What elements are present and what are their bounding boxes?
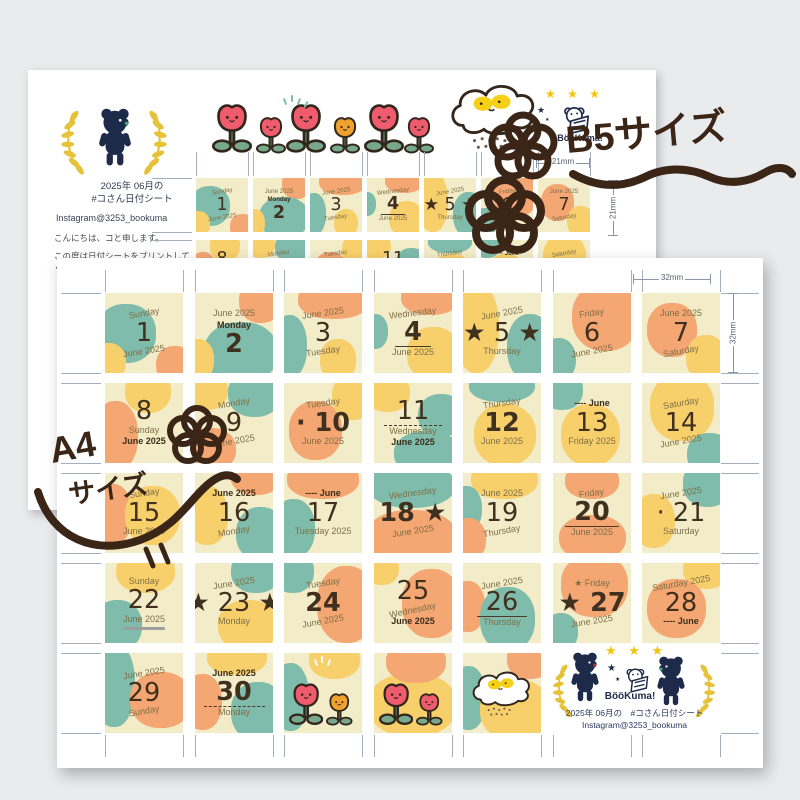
cloud-egg-icon	[469, 661, 535, 725]
calendar-cell-4: Wednesday4June 2025	[367, 178, 419, 232]
calendar-cell-13: ---- June13Friday 2025	[553, 383, 631, 463]
crop-mark	[553, 735, 554, 757]
crop-mark	[362, 152, 363, 176]
date-label: Thursday	[483, 617, 521, 628]
calendar-cell-22: Sunday22June 2025	[105, 563, 183, 643]
calendar-cell-14: Saturday14June 2025	[642, 383, 720, 463]
bear-icon	[94, 90, 136, 182]
crop-mark	[721, 733, 759, 734]
date-number: 28	[665, 590, 697, 617]
decor-cell-tulipsA	[284, 653, 362, 733]
crop-mark	[721, 463, 759, 464]
crop-mark	[61, 463, 101, 464]
date-number: · 10	[296, 410, 350, 437]
date-label: Tuesday	[305, 344, 340, 360]
date-number: · 21	[657, 500, 706, 527]
cell-content: Friday6June 2025	[481, 178, 533, 232]
tulip-icon	[289, 679, 323, 729]
bookuma-footer-stamp: ★ ★ ★ ★ ★	[527, 643, 742, 741]
date-number: 1	[216, 196, 227, 214]
crop-mark	[533, 152, 534, 176]
laurel-icon	[142, 104, 170, 176]
b5-title-line1: 2025年 06月の	[48, 178, 216, 192]
date-number: 4	[381, 195, 405, 214]
navy-star-icon: ★	[537, 105, 545, 116]
b5-greeting: こんにちは、コと申します。	[54, 232, 164, 244]
crop-mark	[642, 735, 643, 757]
crop-mark	[152, 240, 192, 241]
cell-content: Sunday22June 2025	[105, 563, 183, 643]
brand-text: BööKuma!	[567, 691, 693, 702]
brand-text: BööKuma!	[533, 133, 627, 143]
date-number: 22	[128, 587, 160, 614]
date-label: Friday	[498, 187, 516, 197]
cell-content: Friday6June 2025	[553, 293, 631, 373]
crop-mark	[721, 553, 759, 554]
date-number: 14	[665, 410, 697, 437]
date-number: 25	[397, 578, 429, 605]
crop-mark	[374, 735, 375, 757]
calendar-cell-26: June 202526Thursday	[463, 563, 541, 643]
reading-bear-icon	[620, 665, 652, 693]
date-number: ★ 5 ★	[463, 320, 541, 347]
cell-content: Sunday15June 2025	[105, 473, 183, 553]
crop-mark	[310, 152, 311, 176]
calendar-cell-2: June 2025Monday2	[195, 293, 273, 373]
date-number: ★ 23 ★	[195, 590, 273, 617]
date-label: June 2025	[392, 347, 434, 358]
calendar-cell-27: ★ Friday★ 27June 2025	[553, 563, 631, 643]
crop-mark	[61, 563, 101, 564]
calendar-cell-12: Thursday12June 2025	[463, 383, 541, 463]
b5-title-line2: #コさん日付シート	[48, 191, 216, 205]
date-number: 2	[273, 204, 285, 222]
b5-instagram: Instagram@3253_bookuma	[56, 213, 167, 223]
cell-content: Saturday14June 2025	[642, 383, 720, 463]
date-number: 17	[307, 500, 339, 527]
crop-mark	[553, 270, 554, 292]
bookuma-logo	[58, 90, 173, 185]
date-label: June 2025	[213, 308, 255, 319]
sparkle-icon	[321, 656, 323, 663]
calendar-cell-3: June 20253Tuesday	[284, 293, 362, 373]
date-number: 9	[226, 410, 242, 437]
date-number: 3	[315, 320, 331, 347]
cell-content: 8SundayJune 2025	[105, 383, 183, 463]
crop-mark	[152, 232, 192, 233]
tulip-icon	[379, 679, 413, 729]
decor-cell-tulipsB	[374, 653, 452, 733]
cell-content: Sunday1June 2025	[105, 293, 183, 373]
date-number: 12	[484, 410, 520, 437]
calendar-cell-19: June 202519Thursday	[463, 473, 541, 553]
crop-mark	[284, 270, 285, 292]
crop-mark	[721, 643, 759, 644]
calendar-cell-29: June 202529Sunday	[105, 653, 183, 733]
footer-line2: Instagram@3253_bookuma	[527, 720, 742, 730]
calendar-cell-6: Friday6June 2025	[553, 293, 631, 373]
gray-underline	[123, 627, 165, 630]
crop-mark	[284, 735, 285, 757]
date-number: 13	[576, 410, 608, 437]
date-number: 26	[477, 589, 527, 617]
cell-content: Wednesday4June 2025	[374, 293, 452, 373]
date-number: 20	[565, 499, 618, 527]
date-label: June 2025	[391, 437, 435, 448]
cell-content: Thursday12June 2025	[463, 383, 541, 463]
date-number: 11	[384, 398, 442, 426]
tulip-icon	[364, 100, 404, 156]
date-label: Thursday	[437, 214, 462, 222]
cell-content: 25WednesdayJune 2025	[374, 563, 452, 643]
cell-content: June 20253Tuesday	[310, 178, 362, 232]
crop-mark	[183, 270, 184, 292]
crop-mark	[61, 643, 101, 644]
product-photo-stage: 2025年 06月の #コさん日付シート Instagram@3253_book…	[0, 0, 800, 800]
cell-content: Saturday 202528---- June	[642, 563, 720, 643]
crop-mark	[61, 373, 101, 374]
calendar-cell-6: Friday6June 2025	[481, 178, 533, 232]
cell-content: June 202529Sunday	[105, 653, 183, 733]
navy-star-icon: ★	[607, 663, 616, 674]
footer-line1: 2025年 06月の #コさん日付シート	[527, 707, 742, 719]
calendar-cell-3: June 20253Tuesday	[310, 178, 362, 232]
cell-content: Tuesday· 10June 2025	[284, 383, 362, 463]
date-number: 16	[218, 500, 250, 527]
crop-mark	[463, 735, 464, 757]
date-number: 6	[501, 196, 512, 214]
calendar-cell-28: Saturday 202528---- June	[642, 563, 720, 643]
tulip-icon	[404, 114, 434, 156]
date-number: 3	[330, 196, 341, 214]
reading-bear-icon	[555, 103, 595, 135]
tulip-row	[178, 92, 458, 158]
crop-mark	[61, 733, 101, 734]
cell-content: Wednesday4June 2025	[367, 178, 419, 232]
laurel-icon	[58, 104, 86, 176]
cell-content: June 2025· 21Saturday	[642, 473, 720, 553]
crop-mark	[721, 373, 759, 374]
date-label: June 2025	[302, 436, 344, 447]
date-label: Monday	[218, 616, 250, 627]
cell-content: June 2025★ 5 ★Thursday	[463, 293, 541, 373]
date-number: ★ 5 ★	[424, 196, 476, 214]
calendar-cell-4: Wednesday4June 2025	[374, 293, 452, 373]
calendar-cell-1: Sunday1June 2025	[105, 293, 183, 373]
cell-content: ---- June13Friday 2025	[553, 383, 631, 463]
cell-content: ★ Friday★ 27June 2025	[553, 563, 631, 643]
date-number: 7	[558, 196, 569, 214]
cell-content: Wednesday18 ★June 2025	[374, 473, 452, 553]
date-number: 19	[486, 500, 518, 527]
date-label: June 2025	[570, 343, 613, 361]
date-label: Friday 2025	[568, 436, 616, 447]
cell-content: June 2025★ 23 ★Monday	[195, 563, 273, 643]
calendar-cell-16: June 202516Monday	[195, 473, 273, 553]
calendar-cell-21: June 2025· 21Saturday	[642, 473, 720, 553]
date-number: 8	[136, 398, 152, 425]
tulip-icon	[330, 114, 360, 156]
crop-mark	[452, 735, 453, 757]
crop-mark	[631, 270, 632, 292]
date-number: 18 ★	[379, 500, 446, 527]
calendar-cell-5: June 2025★ 5 ★Thursday	[424, 178, 476, 232]
crop-mark	[424, 152, 425, 176]
date-label: June 2025	[265, 188, 294, 196]
calendar-cell-7: June 20257Saturday	[642, 293, 720, 373]
date-label: June 2025	[481, 436, 523, 447]
crop-mark	[481, 152, 482, 176]
crop-mark	[452, 270, 453, 292]
crop-mark	[631, 735, 632, 757]
date-label: Saturday	[662, 343, 699, 360]
date-number: 2	[225, 331, 243, 358]
cell-content: June 202526Thursday	[463, 563, 541, 643]
navy-star-small-icon: ★	[545, 117, 549, 123]
crop-mark	[273, 735, 274, 757]
calendar-cell-24: Tuesday24June 2025	[284, 563, 362, 643]
crop-mark	[720, 735, 721, 757]
b5-cell-width-measure: 21mm	[536, 156, 590, 170]
cell-content: June 202516Monday	[195, 473, 273, 553]
date-label: Saturday	[663, 526, 699, 537]
date-label: June 2025	[207, 212, 236, 224]
calendar-cell-15: Sunday15June 2025	[105, 473, 183, 553]
crop-mark	[362, 270, 363, 292]
date-number: 15	[128, 500, 160, 527]
date-number: 29	[128, 680, 160, 707]
date-label: Wednesday	[389, 426, 436, 437]
date-label: Tuesday 2025	[295, 526, 352, 537]
tulip-icon	[326, 690, 353, 728]
crop-mark	[721, 383, 759, 384]
crop-mark	[720, 270, 721, 292]
crop-mark	[367, 152, 368, 176]
crop-mark	[419, 152, 420, 176]
cloud-egg-icon	[446, 80, 541, 152]
cell-content: ---- June17Tuesday 2025	[284, 473, 362, 553]
calendar-cell-8: 8SundayJune 2025	[105, 383, 183, 463]
crop-mark	[721, 653, 759, 654]
crop-mark	[248, 152, 249, 176]
decor-cell-cloud	[463, 653, 541, 733]
crop-mark	[105, 735, 106, 757]
calendar-cell-2: June 2025Monday2	[253, 178, 305, 232]
calendar-cell-11: 11WednesdayJune 2025	[374, 383, 452, 463]
date-number: 4	[395, 319, 431, 347]
calendar-cell-23: June 2025★ 23 ★Monday	[195, 563, 273, 643]
date-label: June 2025	[123, 614, 165, 625]
date-number: ★ 27	[558, 590, 625, 617]
crop-mark	[61, 553, 101, 554]
date-label: ---- June	[663, 616, 699, 627]
crop-mark	[362, 735, 363, 757]
calendar-cell-18: Wednesday18 ★June 2025	[374, 473, 452, 553]
date-label: June 2025	[212, 433, 255, 451]
a4-cell-height-measure: 32mm	[726, 293, 740, 373]
calendar-cell-5: June 2025★ 5 ★Thursday	[463, 293, 541, 373]
crop-mark	[195, 270, 196, 292]
cell-content: Sunday1June 2025	[196, 178, 248, 232]
cell-content: Friday20June 2025	[553, 473, 631, 553]
tulip-icon	[286, 100, 326, 156]
date-label: June 2025	[571, 527, 613, 538]
cell-content: June 2025Monday2	[253, 178, 305, 232]
crop-mark	[721, 473, 759, 474]
cell-content: June 2025★ 5 ★Thursday	[424, 178, 476, 232]
date-label: Sunday	[129, 425, 160, 436]
crop-mark	[183, 735, 184, 757]
crop-mark	[541, 735, 542, 757]
b5-cell-height-measure: 21mm	[606, 180, 620, 236]
date-label: Saturday	[551, 212, 576, 224]
calendar-cell-9: Monday9June 2025	[195, 383, 273, 463]
date-label: Thursday	[483, 346, 521, 357]
tulip-icon	[256, 114, 286, 156]
calendar-cell-17: ---- June17Tuesday 2025	[284, 473, 362, 553]
crop-mark	[61, 293, 101, 294]
date-number: 7	[673, 320, 689, 347]
cell-content: June 20257Saturday	[642, 293, 720, 373]
crop-mark	[152, 178, 192, 179]
crop-mark	[273, 270, 274, 292]
calendar-cell-30: June 202530Monday	[195, 653, 273, 733]
crop-mark	[61, 473, 101, 474]
date-label: Friday	[579, 307, 605, 322]
calendar-cell-20: Friday20June 2025	[553, 473, 631, 553]
cell-content: June 2025Monday2	[195, 293, 273, 373]
date-label: June 2025	[122, 436, 166, 447]
tulip-icon	[416, 690, 443, 728]
bookuma-stamp: ★ ★ ★★★ BööKuma!	[533, 85, 627, 147]
crop-mark	[476, 152, 477, 176]
crop-mark	[721, 563, 759, 564]
cell-content: June 202530Monday	[195, 653, 273, 733]
crop-mark	[195, 735, 196, 757]
date-label: June 2025	[379, 215, 408, 223]
cell-content: Monday9June 2025	[195, 383, 273, 463]
crop-mark	[105, 270, 106, 292]
date-label: Monday	[218, 707, 250, 718]
cell-content: June 20257Saturday	[538, 178, 590, 232]
cell-content: Tuesday24June 2025	[284, 563, 362, 643]
a4-sheet: 32mm 32mm ★ ★ ★ ★ ★	[57, 258, 763, 768]
calendar-cell-1: Sunday1June 2025	[196, 178, 248, 232]
crop-mark	[305, 152, 306, 176]
calendar-cell-10: Tuesday· 10June 2025	[284, 383, 362, 463]
date-number: 6	[584, 320, 600, 347]
cell-content: June 20253Tuesday	[284, 293, 362, 373]
cell-content: 11WednesdayJune 2025	[374, 383, 452, 463]
crop-mark	[374, 270, 375, 292]
date-label: June 2025	[123, 526, 165, 537]
crop-mark	[463, 270, 464, 292]
crop-mark	[590, 152, 591, 176]
crop-mark	[196, 152, 197, 176]
sparkle-icon	[291, 95, 293, 102]
date-label: June 2025	[492, 212, 521, 224]
crop-mark	[253, 152, 254, 176]
tulip-icon	[212, 100, 252, 156]
cell-content: June 202519Thursday	[463, 473, 541, 553]
calendar-cell-7: June 20257Saturday	[538, 178, 590, 232]
date-number: 30	[204, 679, 265, 707]
crop-mark	[541, 270, 542, 292]
date-number: 1	[136, 320, 152, 347]
stars-icon: ★ ★ ★	[545, 87, 604, 101]
crop-mark	[61, 653, 101, 654]
date-label: June 2025	[122, 343, 165, 361]
crop-mark	[61, 383, 101, 384]
date-number: 24	[305, 590, 341, 617]
calendar-cell-25: 25WednesdayJune 2025	[374, 563, 452, 643]
date-label: Tuesday	[324, 213, 348, 224]
a4-cell-width-measure: 32mm	[633, 272, 711, 286]
